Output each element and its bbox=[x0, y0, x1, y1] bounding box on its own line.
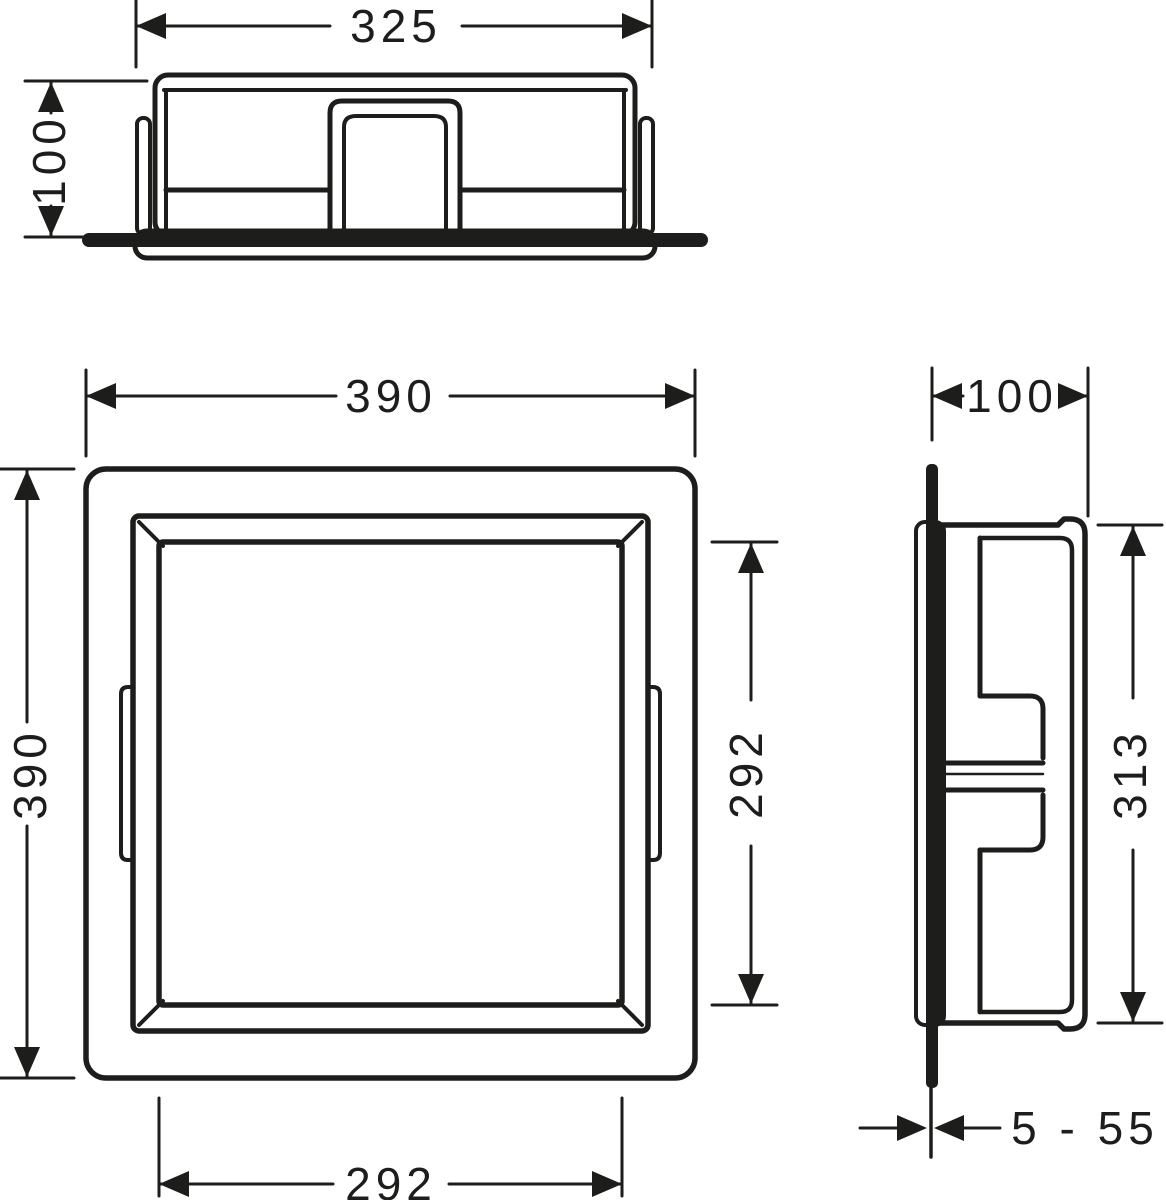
dim-label-side-depth-range: 5 - 55 bbox=[1011, 1102, 1159, 1154]
dim-label-top-depth: 100 bbox=[23, 114, 75, 206]
dim-label-top-width: 325 bbox=[350, 0, 442, 52]
arrowhead-inward-right bbox=[897, 1115, 927, 1141]
arrowhead-up bbox=[14, 470, 40, 500]
dim-label-front-inner-height: 292 bbox=[720, 727, 772, 819]
front-corner-bevel-tl bbox=[139, 522, 163, 546]
top-right-wall bbox=[640, 118, 653, 234]
dim-side-depth-100: 100 bbox=[932, 368, 1088, 516]
dim-front-inner-width-292: 292 bbox=[159, 1098, 622, 1200]
dim-front-outer-width-390: 390 bbox=[86, 370, 695, 456]
arrowhead-down bbox=[38, 206, 64, 236]
dim-top-depth-100: 100 bbox=[23, 81, 147, 237]
front-corner-bevel-bl bbox=[139, 1001, 163, 1025]
top-left-wall bbox=[137, 118, 150, 234]
front-view: 390 390 292 bbox=[0, 370, 777, 1200]
side-flange-bar bbox=[926, 464, 938, 1088]
side-tab-protrusion-lower bbox=[980, 795, 1043, 850]
dim-label-front-outer-height: 390 bbox=[4, 728, 56, 820]
top-view: 325 100 bbox=[23, 0, 701, 258]
dim-label-front-outer-width: 390 bbox=[345, 370, 437, 422]
front-box-outer-edge bbox=[133, 516, 648, 1031]
front-opening-inner-edge bbox=[159, 542, 622, 1005]
top-center-channel-inner bbox=[344, 116, 446, 232]
arrowhead-left bbox=[932, 383, 962, 409]
arrowhead-left bbox=[136, 13, 166, 39]
technical-drawing: 325 100 bbox=[0, 0, 1166, 1200]
arrowhead-up bbox=[1120, 526, 1146, 556]
arrowhead-right bbox=[1058, 383, 1088, 409]
drawing-svg: 325 100 bbox=[0, 0, 1166, 1200]
arrowhead-right bbox=[592, 1171, 622, 1197]
dim-front-inner-height-292: 292 bbox=[712, 542, 777, 1005]
dim-label-front-inner-width: 292 bbox=[345, 1158, 437, 1200]
arrowhead-down bbox=[14, 1047, 40, 1077]
arrowhead-right bbox=[622, 13, 652, 39]
arrowhead-down bbox=[738, 974, 764, 1004]
top-center-channel-outer bbox=[330, 101, 460, 232]
arrowhead-up bbox=[738, 543, 764, 573]
arrowhead-right bbox=[665, 383, 695, 409]
arrowhead-left bbox=[86, 383, 116, 409]
front-corner-bevel-tr bbox=[618, 522, 642, 546]
dim-side-height-313: 313 bbox=[1098, 525, 1162, 1023]
front-corner-bevel-br bbox=[618, 1001, 642, 1025]
dim-side-depth-range: 5 - 55 bbox=[860, 1102, 1159, 1154]
dim-label-side-height: 313 bbox=[1104, 728, 1156, 820]
arrowhead-inward-left bbox=[934, 1115, 964, 1141]
side-view: 100 313 5 - 55 bbox=[860, 368, 1162, 1157]
side-tab-protrusion-upper bbox=[980, 696, 1043, 758]
arrowhead-up bbox=[38, 82, 64, 112]
front-outer-frame bbox=[86, 469, 695, 1078]
arrowhead-left bbox=[159, 1171, 189, 1197]
dim-label-side-depth: 100 bbox=[966, 370, 1058, 422]
dim-top-width-325: 325 bbox=[136, 0, 652, 67]
dim-front-outer-height-390: 390 bbox=[0, 469, 74, 1078]
arrowhead-down bbox=[1120, 992, 1146, 1022]
